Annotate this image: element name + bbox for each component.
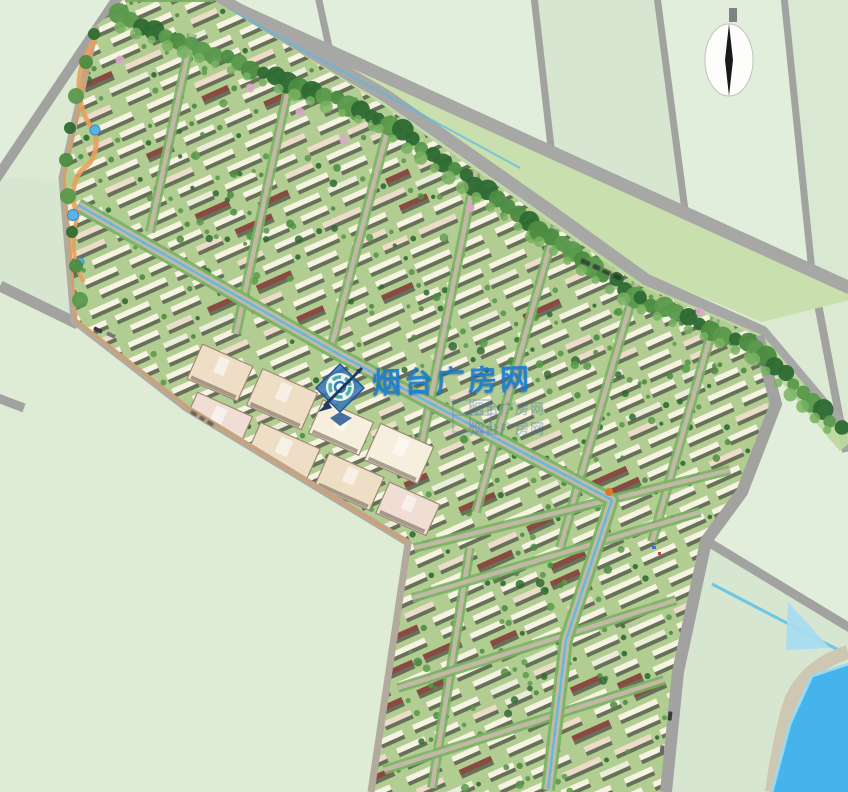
watermark-text: 烟台广房网 [372,366,533,399]
master-plan-image: 烟台广房网 烟台广房网 烟台广房网 [0,0,848,792]
magnifier-compass-icon [312,360,368,428]
watermark-sub-text: 烟台广房网 烟台广房网 [470,400,600,439]
